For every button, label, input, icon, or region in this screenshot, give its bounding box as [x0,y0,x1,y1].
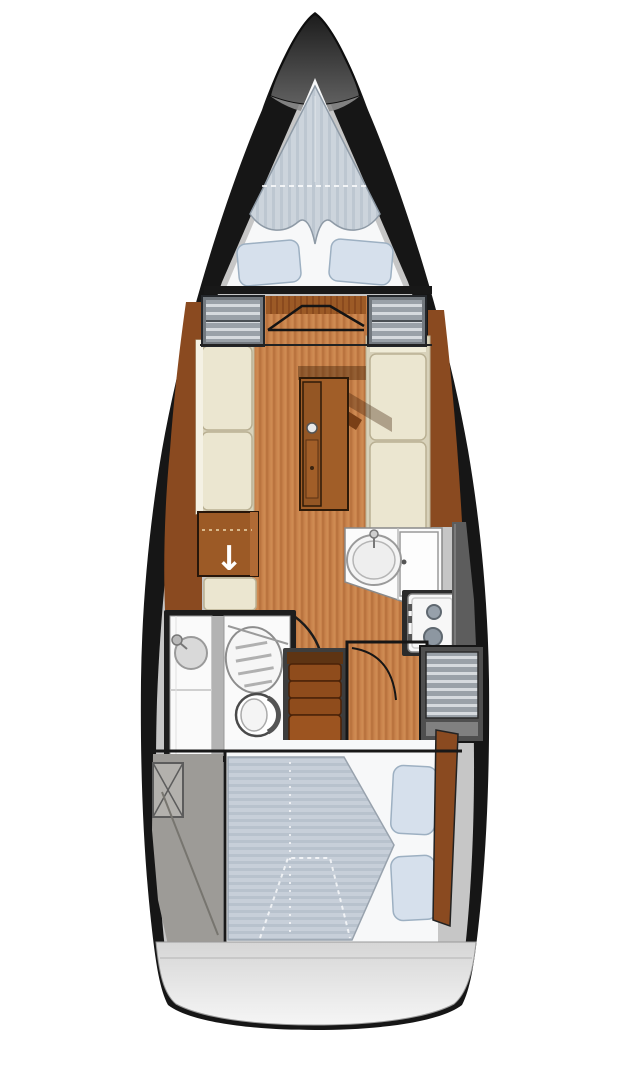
bulkhead-wall [204,286,432,294]
chart-table-edge [250,512,258,576]
head-faucet [172,635,182,645]
chart-table: ↓ [198,512,258,610]
pillow [328,238,393,285]
galley-cabinet-door [400,532,438,596]
stove-knob [408,616,412,623]
starboard-storage-locker [368,296,426,346]
boat-floor-plan: ↓ [0,0,630,1080]
settee-cushion [202,346,252,430]
cup-holder [307,423,317,433]
transom-deck [156,942,476,1025]
settee-cushion [370,354,426,440]
down-arrow-icon: ↓ [215,539,244,579]
toilet [236,694,279,736]
starboard-settee [366,336,430,536]
stove-knob [408,634,412,641]
pillow [236,239,301,286]
step [289,698,341,715]
settee-backrest [196,340,203,514]
pillow [390,765,437,835]
port-settee [196,340,254,514]
settee-cushion [370,442,426,534]
step-bottom [289,715,341,743]
chart-table-seat [204,578,256,610]
stern-platform [156,942,476,1025]
aft-cabin [150,730,462,957]
port-storage-locker [202,296,264,346]
stove-knob [408,604,412,611]
cabinet-knob [402,560,407,565]
burner-small [427,605,441,619]
pillow [390,855,437,921]
aft-locker-slats [426,652,478,718]
head-partition [212,616,224,756]
aft-storage-locker [420,646,484,742]
steps-landing [287,652,343,664]
settee-cushion [202,432,252,510]
step [289,681,341,698]
floor-plan-drawing: ↓ [0,0,630,1080]
toilet-seat [241,699,267,731]
table-dot [310,466,314,470]
faucet [370,530,378,538]
step [289,664,341,681]
